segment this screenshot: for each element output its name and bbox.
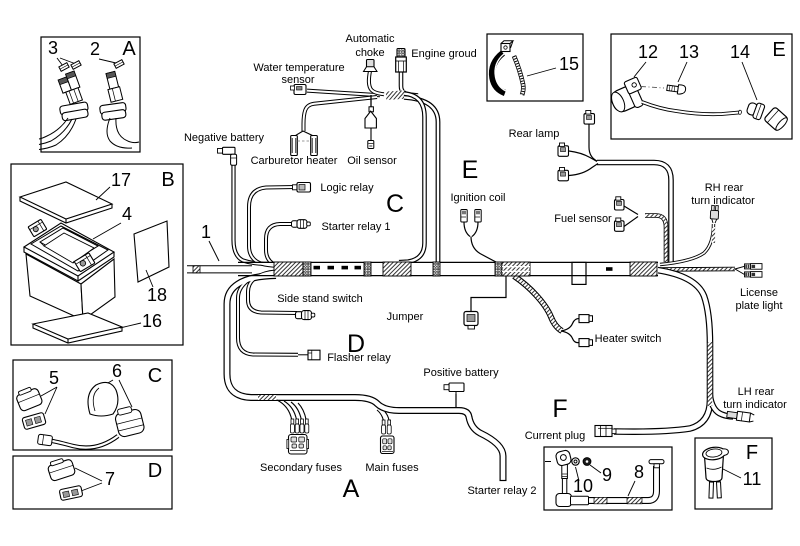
svg-text:B: B: [161, 169, 174, 191]
svg-text:Positive battery: Positive battery: [423, 367, 499, 379]
svg-text:D: D: [148, 460, 162, 482]
svg-text:Fuel sensor: Fuel sensor: [554, 213, 612, 225]
svg-text:13: 13: [679, 42, 699, 62]
svg-text:A: A: [122, 38, 136, 60]
svg-text:18: 18: [147, 285, 167, 305]
svg-text:RH rear: RH rear: [705, 182, 744, 194]
svg-text:sensor: sensor: [281, 74, 314, 86]
svg-text:Starter relay 2: Starter relay 2: [467, 485, 536, 497]
svg-text:Starter relay 1: Starter relay 1: [321, 221, 390, 233]
svg-text:A: A: [343, 475, 360, 503]
svg-text:Secondary fuses: Secondary fuses: [260, 462, 342, 474]
svg-text:9: 9: [602, 465, 612, 485]
svg-text:Rear lamp: Rear lamp: [509, 128, 560, 140]
svg-text:E: E: [772, 39, 785, 61]
svg-text:Current plug: Current plug: [525, 430, 586, 442]
svg-text:5: 5: [49, 368, 59, 388]
svg-text:16: 16: [142, 311, 162, 331]
svg-text:2: 2: [90, 39, 100, 59]
svg-text:F: F: [552, 395, 567, 423]
svg-text:6: 6: [112, 361, 122, 381]
svg-text:Oil sensor: Oil sensor: [347, 155, 397, 167]
svg-text:F: F: [746, 442, 758, 464]
svg-text:Main fuses: Main fuses: [365, 462, 419, 474]
svg-text:10: 10: [573, 476, 593, 496]
svg-text:1: 1: [201, 222, 211, 242]
svg-text:12: 12: [638, 42, 658, 62]
svg-text:E: E: [462, 156, 479, 184]
svg-text:15: 15: [559, 54, 579, 74]
svg-text:Automatic: Automatic: [346, 33, 395, 45]
svg-text:plate light: plate light: [735, 300, 782, 312]
svg-text:14: 14: [730, 42, 750, 62]
svg-text:Carburetor heater: Carburetor heater: [251, 155, 338, 167]
svg-text:8: 8: [634, 462, 644, 482]
svg-text:C: C: [386, 190, 404, 218]
svg-text:License: License: [740, 287, 778, 299]
svg-text:Flasher relay: Flasher relay: [327, 352, 391, 364]
svg-text:7: 7: [105, 469, 115, 489]
svg-text:LH rear: LH rear: [738, 386, 775, 398]
svg-text:11: 11: [743, 469, 762, 489]
svg-text:choke: choke: [355, 47, 384, 59]
svg-text:turn indicator: turn indicator: [723, 399, 787, 411]
svg-text:Ignition coil: Ignition coil: [450, 192, 505, 204]
svg-text:Negative battery: Negative battery: [184, 132, 265, 144]
svg-text:17: 17: [111, 170, 131, 190]
svg-text:3: 3: [48, 38, 58, 58]
svg-text:turn indicator: turn indicator: [691, 195, 755, 207]
svg-text:Side stand switch: Side stand switch: [277, 293, 363, 305]
svg-text:Logic relay: Logic relay: [320, 182, 374, 194]
svg-text:Water temperature: Water temperature: [253, 62, 344, 74]
svg-text:Jumper: Jumper: [387, 311, 424, 323]
svg-text:Engine groud: Engine groud: [411, 48, 476, 60]
svg-text:C: C: [148, 365, 162, 387]
svg-text:4: 4: [122, 204, 132, 224]
svg-text:Heater switch: Heater switch: [595, 333, 662, 345]
